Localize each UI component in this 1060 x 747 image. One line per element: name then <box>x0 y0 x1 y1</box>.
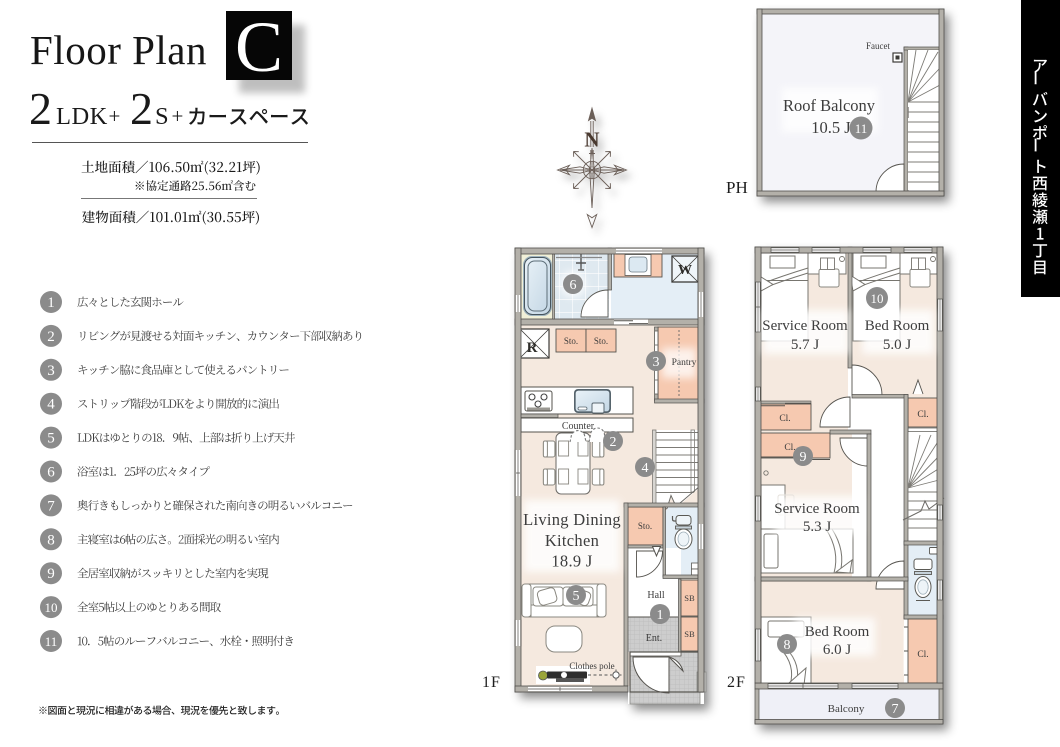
svg-text:Cl.: Cl. <box>917 650 928 660</box>
svg-text:W: W <box>678 263 692 278</box>
svg-text:6.0 J: 6.0 J <box>823 642 852 658</box>
svg-text:Faucet: Faucet <box>866 41 890 51</box>
svg-text:6: 6 <box>570 278 577 293</box>
svg-text:9: 9 <box>47 566 55 582</box>
svg-text:7: 7 <box>47 498 55 514</box>
svg-text:3: 3 <box>47 363 55 379</box>
svg-text:Ent.: Ent. <box>646 633 662 644</box>
svg-text:N: N <box>584 128 599 152</box>
svg-text:Pantry: Pantry <box>672 358 697 368</box>
svg-text:8: 8 <box>47 532 55 548</box>
svg-text:Cl.: Cl. <box>917 410 928 420</box>
svg-text:5.0 J: 5.0 J <box>883 337 912 353</box>
svg-text:2: 2 <box>29 83 52 134</box>
svg-text:2: 2 <box>130 83 153 134</box>
svg-text:4: 4 <box>642 461 649 476</box>
svg-text:2F: 2F <box>727 674 746 691</box>
svg-text:Floor Plan: Floor Plan <box>30 27 207 73</box>
svg-text:10.5 J: 10.5 J <box>811 118 851 137</box>
svg-text:Clothes pole: Clothes pole <box>569 661 614 671</box>
svg-text:Sto.: Sto. <box>594 336 608 346</box>
svg-text:Sto.: Sto. <box>638 521 652 531</box>
svg-text:LDK: LDK <box>56 103 108 130</box>
svg-text:5: 5 <box>573 589 580 604</box>
svg-text:18.9 J: 18.9 J <box>551 552 592 571</box>
svg-text:+: + <box>109 104 121 128</box>
svg-text:Bed Room: Bed Room <box>805 624 870 640</box>
svg-text:R: R <box>527 340 538 356</box>
svg-text:8: 8 <box>784 638 791 653</box>
svg-text:5.7 J: 5.7 J <box>791 337 820 353</box>
svg-text:SB: SB <box>684 593 695 603</box>
svg-text:Sto.: Sto. <box>564 336 578 346</box>
svg-text:Kitchen: Kitchen <box>545 531 599 550</box>
svg-text:+: + <box>172 104 184 128</box>
svg-text:SB: SB <box>684 629 695 639</box>
svg-text:Living Dining: Living Dining <box>523 510 621 529</box>
svg-text:Cl.: Cl. <box>784 443 795 453</box>
svg-text:C: C <box>235 7 283 87</box>
svg-text:9: 9 <box>800 450 807 465</box>
svg-text:7: 7 <box>892 702 899 717</box>
svg-text:Cl.: Cl. <box>779 414 790 424</box>
svg-text:10: 10 <box>871 291 884 306</box>
svg-text:PH: PH <box>726 178 748 197</box>
svg-text:Service Room: Service Room <box>774 501 860 517</box>
svg-text:S: S <box>155 103 169 130</box>
svg-text:Roof Balcony: Roof Balcony <box>783 96 876 115</box>
svg-text:5: 5 <box>47 431 55 447</box>
svg-text:1: 1 <box>657 608 664 623</box>
svg-text:5.3 J: 5.3 J <box>803 519 832 535</box>
svg-text:11: 11 <box>855 121 868 136</box>
svg-text:2: 2 <box>610 435 617 450</box>
svg-text:10: 10 <box>45 600 58 615</box>
svg-text:2: 2 <box>47 329 55 345</box>
svg-text:Bed Room: Bed Room <box>865 318 930 334</box>
svg-text:Hall: Hall <box>647 590 664 601</box>
svg-text:3: 3 <box>653 355 660 370</box>
svg-text:4: 4 <box>47 397 55 413</box>
svg-text:1F: 1F <box>482 674 501 691</box>
svg-text:1: 1 <box>47 295 55 311</box>
svg-text:11: 11 <box>45 634 58 649</box>
svg-text:6: 6 <box>47 465 55 481</box>
svg-text:Balcony: Balcony <box>828 703 865 715</box>
svg-text:Service Room: Service Room <box>762 318 848 334</box>
